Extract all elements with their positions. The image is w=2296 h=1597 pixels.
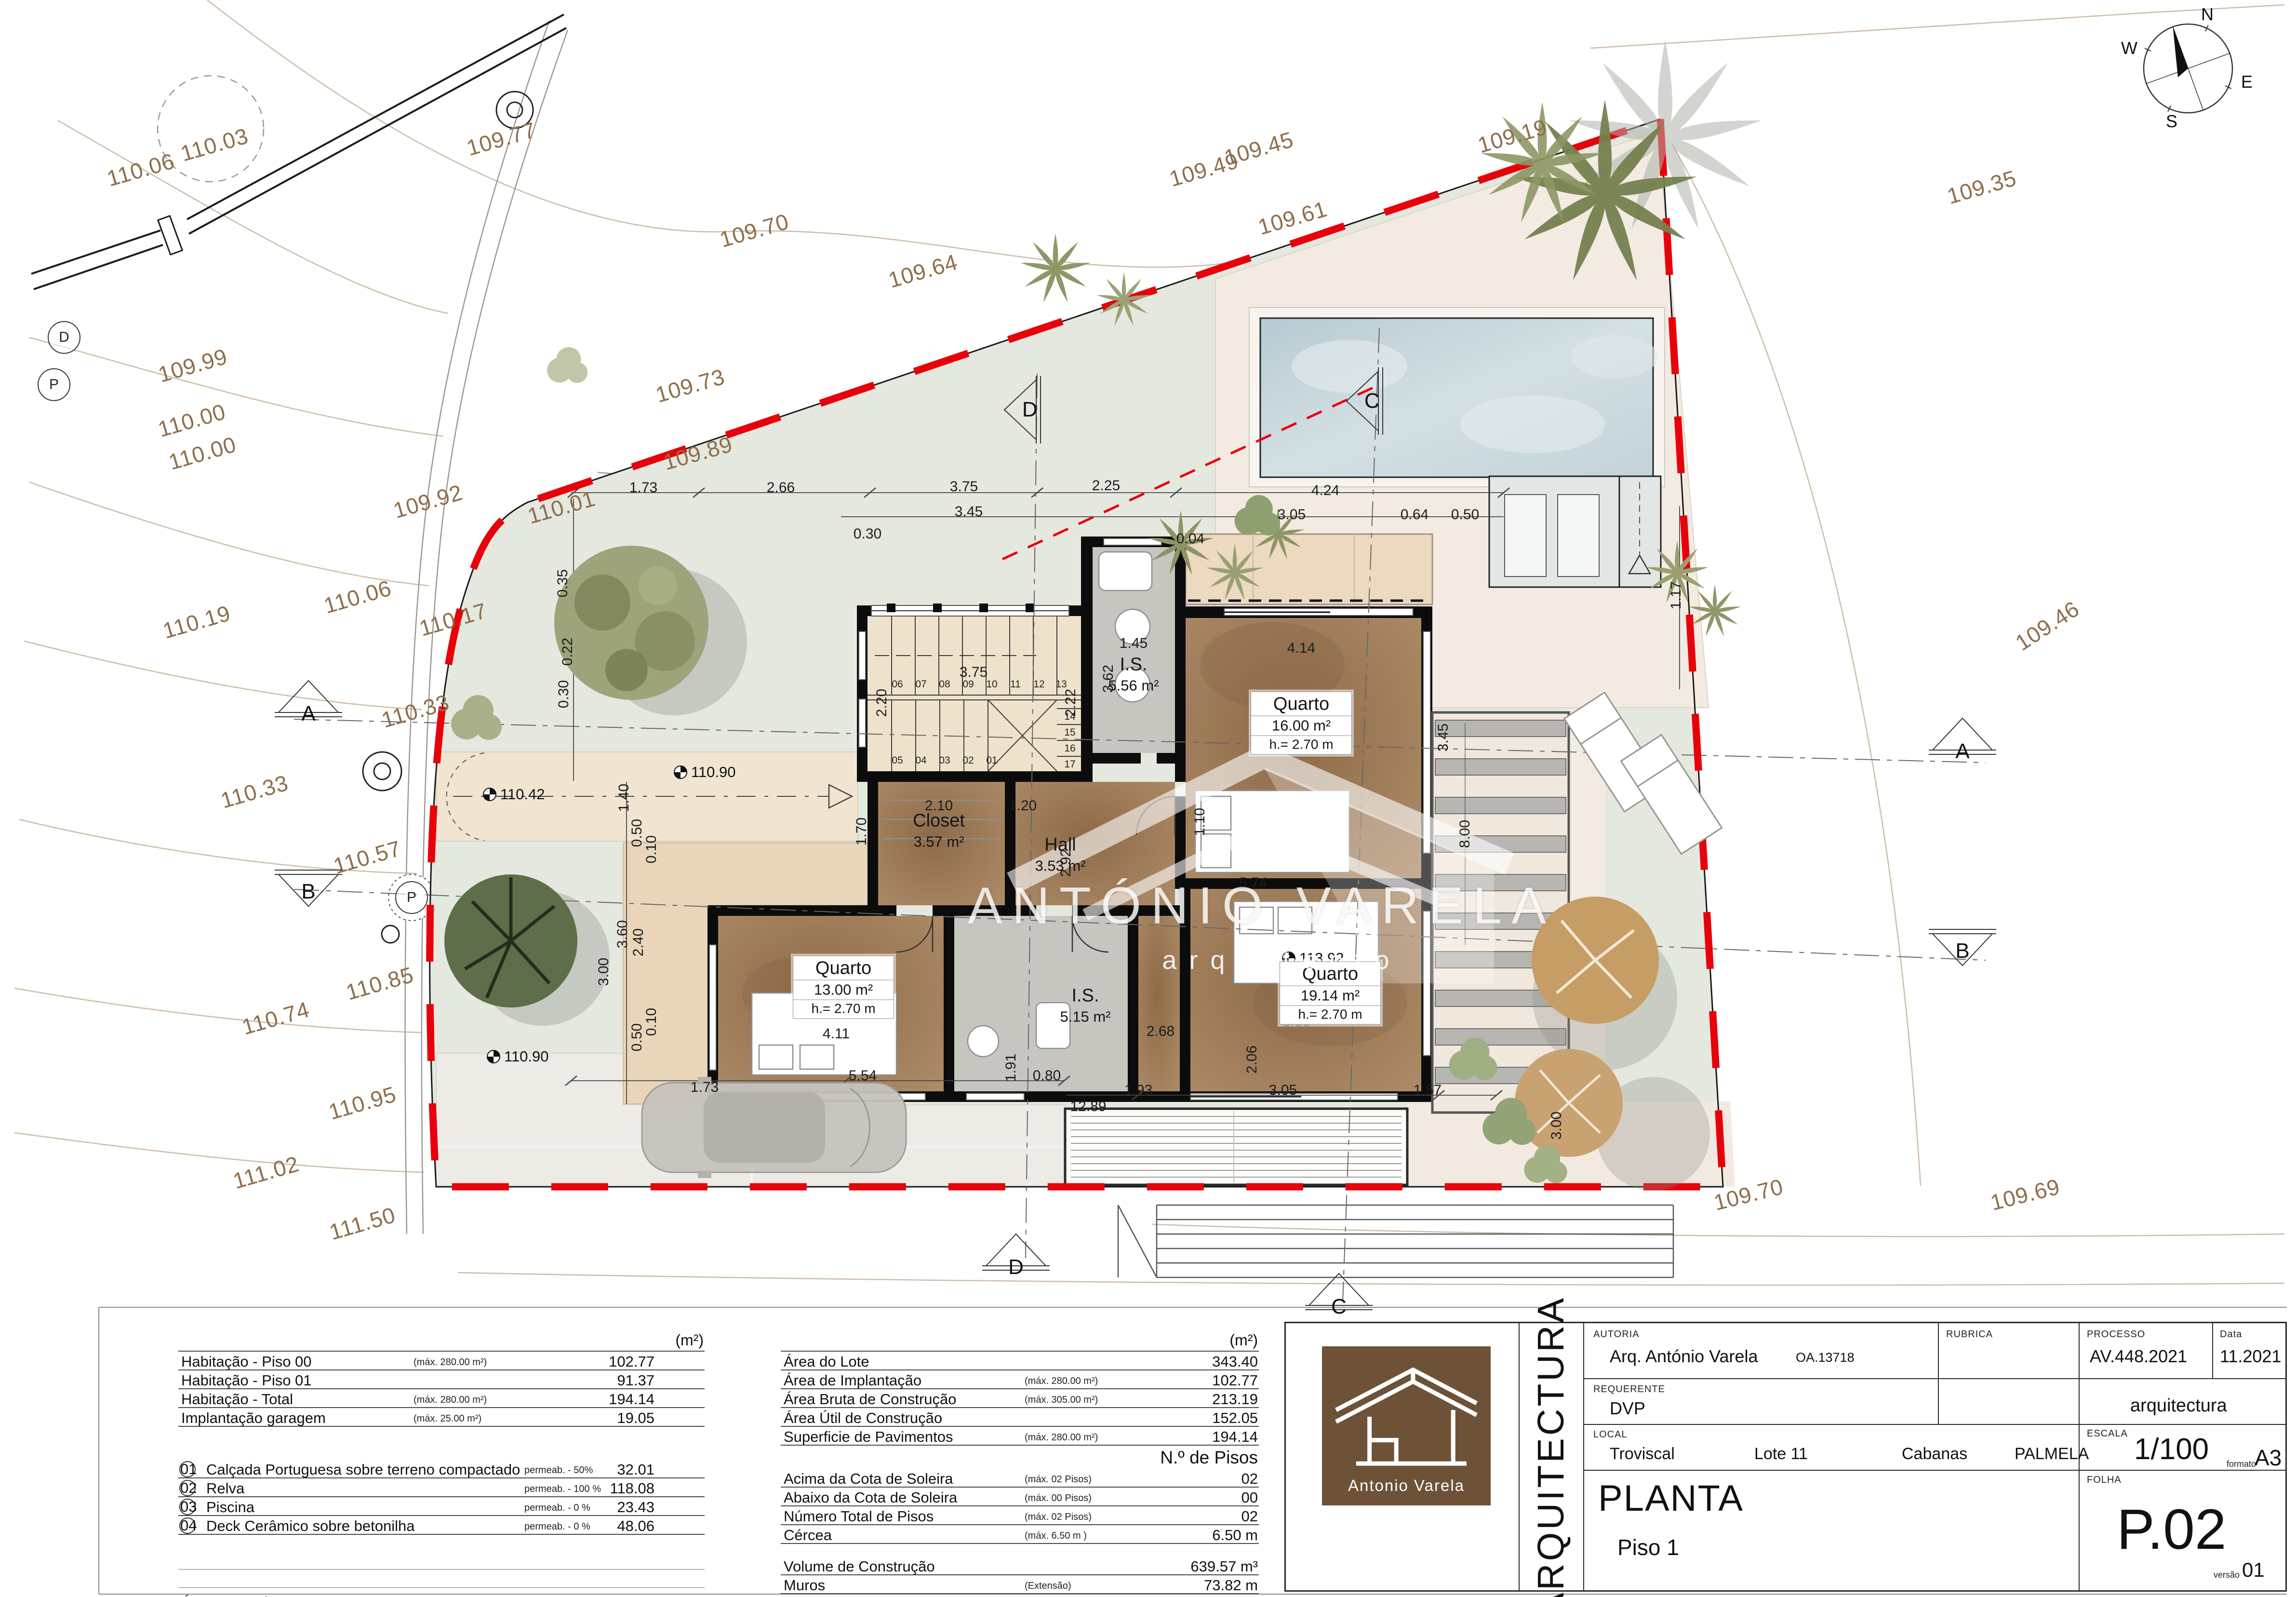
compass-icon	[2131, 12, 2245, 125]
local-3: Cabanas	[1902, 1445, 1967, 1463]
local-label: LOCAL	[1593, 1429, 1628, 1440]
dimension-label: 2.66	[767, 480, 795, 496]
room-area: 5.15 m²	[1053, 1007, 1117, 1027]
dimension-label: 1.70	[854, 818, 870, 845]
row-label: Relva	[206, 1480, 244, 1497]
requerente-value: DVP	[1610, 1398, 1645, 1419]
row-value: 343.40	[1212, 1353, 1258, 1370]
dimension-label: 0.50	[629, 1023, 645, 1051]
section-letter: C	[1364, 389, 1380, 413]
row-value: 194.14	[609, 1391, 654, 1408]
spot-elevation-value: 110.90	[504, 1048, 549, 1065]
room-label: I.S.5.56 m²	[1101, 653, 1165, 696]
row-note: (máx. 280.00 m²)	[1025, 1376, 1098, 1387]
circled-letter-symbol: D	[48, 321, 80, 354]
row-note: permeab. - 0 %	[524, 1503, 590, 1514]
row-value: 00	[1241, 1489, 1258, 1506]
table-row: 03Piscinapermeab. - 0 %23.43	[178, 1497, 705, 1516]
row-label: Área do Lote	[784, 1353, 869, 1370]
room-name: I.S.	[1101, 653, 1165, 676]
row-value: 23.43	[617, 1499, 654, 1516]
section-marker: A	[275, 675, 342, 742]
row-value: 02	[1241, 1508, 1258, 1525]
row-note: permeab. - 50%	[524, 1465, 593, 1476]
row-label: Acima da Cota de Soleira	[784, 1470, 953, 1488]
table-row: 04Deck Cerâmico sobre betonilhapermeab. …	[178, 1516, 705, 1535]
rubrica-label: RUBRICA	[1946, 1329, 1993, 1340]
stair-step-number: 15	[1064, 727, 1075, 738]
dimension-label: 0.22	[560, 638, 576, 666]
dimension-label: 2.06	[1244, 1046, 1260, 1074]
table-row: Habitação - Piso 00(máx. 280.00 m²)102.7…	[178, 1352, 705, 1370]
dimension-label: 0.30	[556, 680, 572, 708]
row-value: 639.57 m³	[1190, 1558, 1258, 1575]
stair-step-number: 16	[1064, 743, 1075, 754]
section-marker: B	[275, 869, 342, 936]
row-note: (máx. 280.00 m²)	[414, 1395, 487, 1406]
benchmark-icon	[674, 765, 687, 779]
row-note: (máx. 280.00 m²)	[414, 1357, 487, 1368]
room-label: Quarto16.00 m²h.= 2.70 m	[1251, 692, 1352, 755]
processo-value: AV.448.2021	[2090, 1346, 2187, 1367]
table-row: Área de Implantação(máx. 280.00 m²)102.7…	[781, 1370, 1259, 1389]
dimension-label: 3.60	[614, 920, 631, 948]
folha-label: FOLHA	[2087, 1475, 2122, 1486]
versao-value: 01	[2242, 1558, 2265, 1582]
room-name: Closet	[906, 809, 972, 832]
room-height: h.= 2.70 m	[1251, 736, 1351, 754]
total-percent: 39.04%	[653, 1594, 704, 1597]
dimension-label: 1.73	[629, 480, 657, 496]
compass-w: W	[2121, 38, 2137, 58]
row-value: 152.05	[1212, 1409, 1258, 1427]
row-label: Área Bruta de Construção	[784, 1391, 956, 1408]
titleblock-vertical-label: ARQUITECTURA	[1519, 1323, 1583, 1590]
section-marker: D	[988, 376, 1055, 443]
row-label: Volume de Construção	[784, 1558, 935, 1575]
watermark-subtext: arquitecto	[1162, 945, 1402, 975]
row-number: 02	[179, 1480, 196, 1496]
table-row: Muros(Altura)0.80 m	[781, 1594, 1259, 1597]
section-marker: D	[982, 1228, 1050, 1296]
room-area: 3.57 m²	[906, 832, 972, 852]
dimension-label: 4.24	[1311, 483, 1339, 499]
logo-name: Antonio Varela	[1322, 1476, 1491, 1495]
stair-step-number: 11	[1010, 679, 1021, 690]
stair-step-number: 02	[962, 755, 974, 766]
row-label: Habitação - Total	[181, 1391, 293, 1408]
escala-label: ESCALA	[2087, 1428, 2128, 1439]
formato-label: formato	[2227, 1459, 2256, 1469]
row-value: 19.05	[617, 1409, 654, 1427]
table-row: Área do Lote343.40	[781, 1352, 1259, 1370]
room-area: 16.00 m²	[1251, 716, 1351, 736]
compass-e: E	[2241, 72, 2253, 92]
room-name: I.S.	[1053, 984, 1117, 1007]
row-number: 01	[179, 1461, 196, 1477]
row-label: Habitação - Piso 01	[181, 1372, 312, 1389]
street-steps	[1118, 1205, 1673, 1277]
stair-step-number: 05	[892, 755, 903, 766]
compass-n: N	[2201, 4, 2214, 25]
section-letter: A	[301, 702, 315, 726]
room-name: Quarto	[1251, 692, 1351, 716]
row-note: (máx. 305.00 m²)	[1025, 1395, 1098, 1406]
dimension-label: 3.75	[950, 479, 978, 495]
dimension-label: 0.50	[1451, 507, 1479, 523]
formato-value: A3	[2255, 1445, 2282, 1471]
room-label: Quarto13.00 m²h.= 2.70 m	[793, 956, 894, 1019]
table-total-row: Área Permeável134.08 m²39.04%	[178, 1593, 705, 1597]
stair-step-number: 10	[986, 679, 997, 690]
sheet-title: PLANTA	[1598, 1477, 1744, 1519]
arquitectura-vertical-text: ARQUITECTURA	[1530, 1296, 1573, 1597]
stair-step-number: 03	[939, 755, 950, 766]
room-area: 5.56 m²	[1101, 676, 1165, 696]
section-letter: D	[1008, 1255, 1024, 1279]
room-name: Quarto	[793, 956, 894, 980]
dimension-label: 3.05	[1278, 507, 1306, 523]
room-name: Hall	[1028, 833, 1092, 857]
row-note: (máx. 280.00 m²)	[1025, 1432, 1098, 1443]
row-value: 6.50 m	[1212, 1527, 1258, 1544]
table-row: Implantação garagem(máx. 25.00 m²)19.05	[178, 1408, 705, 1427]
department: arquitectura	[2130, 1396, 2227, 1416]
dimension-label: 2.40	[630, 928, 647, 956]
row-note: (Extensão)	[1025, 1581, 1071, 1592]
dimension-label: 1.45	[1120, 635, 1148, 652]
row-note: (máx. 02 Pisos)	[1025, 1474, 1092, 1485]
row-value: 194.14	[1212, 1428, 1258, 1446]
row-note: (máx. 6.50 m )	[1025, 1530, 1087, 1542]
stair-step-number: 17	[1064, 759, 1075, 770]
total-value: 134.08 m²	[511, 1594, 578, 1597]
dimension-label: 2.20	[874, 689, 890, 717]
row-value: 102.77	[1212, 1372, 1258, 1389]
dimension-label: 1.93	[1124, 1082, 1152, 1099]
dimension-label: 0.10	[643, 835, 660, 863]
table-row: Abaixo da Cota de Soleira(máx. 00 Pisos)…	[781, 1488, 1259, 1506]
architectural-plan-sheet: 110.03110.06109.77109.70109.64109.73109.…	[0, 0, 2296, 1597]
sheet-subtitle: Piso 1	[1617, 1534, 1679, 1560]
stairwell-floor	[868, 616, 1081, 771]
row-note: permeab. - 0 %	[524, 1521, 590, 1532]
table-row: Volume de Construção639.57 m³	[781, 1557, 1259, 1575]
folha-value: P.02	[2117, 1497, 2227, 1562]
watermark-text: ANTÓNIO VARELA	[968, 875, 1556, 936]
table-row: Superficie de Pavimentos(máx. 280.00 m²)…	[781, 1427, 1259, 1446]
dimension-label: 0.35	[555, 569, 571, 597]
benchmark-icon	[487, 1050, 500, 1063]
room-label: I.S.5.15 m²	[1053, 984, 1117, 1027]
dark-tree	[444, 874, 577, 1007]
pisos-subheader: N.º de Pisos	[1160, 1448, 1258, 1468]
pool-tech-room	[1489, 476, 1661, 587]
section-letter: C	[1331, 1295, 1347, 1319]
table-unit-header: (m²)	[675, 1331, 704, 1349]
stair-step-number: 07	[915, 679, 926, 690]
row-value: 48.06	[617, 1517, 654, 1535]
dimension-label: 4.11	[823, 1026, 850, 1042]
processo-label: PROCESSO	[2087, 1329, 2145, 1340]
circled-letter-symbol: P	[38, 368, 70, 401]
section-marker: A	[1929, 712, 1996, 780]
dimension-label: 3.05	[1269, 1082, 1297, 1099]
row-value: 32.01	[617, 1461, 654, 1478]
dimension-label: 0.10	[643, 1008, 660, 1036]
table-row: 02Relvapermeab. - 100 %118.08	[178, 1478, 705, 1497]
areas-table-left: (m²) Habitação - Piso 00(máx. 280.00 m²)…	[178, 1331, 705, 1597]
row-number: 04	[179, 1517, 196, 1534]
row-value: 91.37	[617, 1372, 654, 1389]
room-area: 13.00 m²	[793, 980, 894, 1000]
autoria-number: OA.13718	[1796, 1350, 1855, 1365]
room-area: 3.53 m²	[1028, 857, 1092, 876]
row-number: 03	[179, 1499, 196, 1515]
room-label: Hall3.53 m²	[1028, 833, 1092, 876]
total-label: Área Permeável	[181, 1594, 288, 1597]
stair-step-number: 08	[939, 679, 950, 690]
dimension-label: 1.17	[1668, 581, 1684, 609]
row-value: 213.19	[1212, 1391, 1258, 1408]
circled-letter-symbol: P	[395, 881, 428, 914]
dimension-label: 1.20	[1009, 798, 1037, 814]
dimension-label: 12.89	[1070, 1099, 1106, 1115]
car	[642, 1077, 906, 1178]
dimension-label: 1.91	[1003, 1054, 1019, 1082]
logo: Antonio Varela	[1322, 1346, 1491, 1505]
dimension-label: 4.14	[1287, 640, 1315, 657]
dimension-label: 1.57	[1414, 1082, 1442, 1099]
table-row: Habitação - Piso 0191.37	[178, 1370, 705, 1389]
table-unit-header: (m²)	[1229, 1331, 1258, 1349]
requerente-label: REQUERENTE	[1593, 1384, 1665, 1395]
benchmark-icon	[483, 788, 496, 801]
table-row: Número Total de Pisos(máx. 02 Pisos)02	[781, 1506, 1259, 1525]
areas-table-middle: (m²) Área do Lote343.40Área de Implantaç…	[781, 1331, 1259, 1597]
title-block: Antonio Varela ARQUITECTURA AUTORIA Arq.…	[1284, 1322, 2287, 1592]
spot-elevation: 110.90	[674, 764, 736, 781]
olive-tree	[554, 546, 708, 700]
section-letter: D	[1022, 398, 1038, 422]
autoria-label: AUTORIA	[1593, 1329, 1640, 1340]
dimension-label: 1.40	[616, 784, 632, 812]
section-marker: B	[1929, 928, 1996, 995]
row-label: Área Útil de Construção	[784, 1409, 942, 1427]
logo-house-icon	[1322, 1353, 1491, 1474]
stair-step-number: 13	[1055, 679, 1067, 690]
local-1: Troviscal	[1610, 1445, 1675, 1463]
row-label: Calçada Portuguesa sobre terreno compact…	[206, 1461, 520, 1478]
dimension-label: 2.68	[1147, 1023, 1175, 1040]
table-row: Área Útil de Construção152.05	[781, 1408, 1259, 1427]
dimension-label: 3.75	[960, 664, 988, 681]
row-label: Habitação - Piso 00	[181, 1353, 312, 1370]
row-value: 102.77	[609, 1353, 654, 1370]
dimension-label: 0.30	[854, 526, 881, 542]
versao-label: versão	[2214, 1570, 2240, 1580]
spot-elevation-value: 110.42	[500, 786, 545, 803]
stair-step-number: 06	[892, 679, 903, 690]
dimension-label: 3.00	[1548, 1112, 1565, 1140]
dimension-label: 0.80	[1033, 1068, 1061, 1084]
row-note: (máx. 00 Pisos)	[1025, 1493, 1092, 1504]
spot-elevation: 110.90	[487, 1048, 549, 1065]
row-label: Número Total de Pisos	[784, 1508, 934, 1525]
room-height: h.= 2.70 m	[1280, 1006, 1380, 1024]
dimension-label: 0.04	[1176, 531, 1204, 547]
dimension-label: 0.50	[629, 819, 645, 847]
row-label: Superficie de Pavimentos	[784, 1428, 953, 1446]
compass-s: S	[2166, 111, 2177, 132]
spot-elevation: 110.42	[483, 786, 545, 803]
local-2: Lote 11	[1754, 1445, 1808, 1463]
dimension-label: 1.10	[1192, 808, 1208, 836]
section-letter: B	[301, 880, 315, 904]
louver-deck	[1065, 1109, 1407, 1185]
dimension-label: 3.00	[596, 958, 612, 986]
table-row: Muros(Extensão)73.82 m	[781, 1575, 1259, 1594]
stair-step-number: 14	[1064, 711, 1075, 723]
row-value: 02	[1241, 1470, 1258, 1488]
room-label: Closet3.57 m²	[906, 809, 972, 852]
row-value: 118.08	[610, 1480, 654, 1497]
row-label: Abaixo da Cota de Soleira	[784, 1489, 957, 1506]
table-row: Área Bruta de Construção(máx. 305.00 m²)…	[781, 1389, 1259, 1408]
spot-elevation-value: 110.90	[691, 764, 736, 781]
row-note: (máx. 25.00 m²)	[414, 1413, 481, 1424]
row-label: Piscina	[206, 1499, 254, 1516]
table-row: Acima da Cota de Soleira(máx. 02 Pisos)0…	[781, 1469, 1259, 1488]
room-area: 19.14 m²	[1280, 986, 1380, 1006]
section-marker: C	[1330, 367, 1398, 435]
autoria-value: Arq. António Varela	[1610, 1346, 1758, 1367]
section-letter: B	[1955, 939, 1969, 963]
escala-value: 1/100	[2134, 1432, 2209, 1466]
stair-step-number: 01	[986, 755, 997, 766]
dimension-label: 2.25	[1092, 478, 1120, 494]
data-label: Data	[2220, 1329, 2242, 1340]
row-label: Área de Implantação	[784, 1372, 921, 1389]
row-label: Muros	[784, 1577, 825, 1594]
section-letter: A	[1955, 739, 1969, 764]
row-note: (máx. 02 Pisos)	[1025, 1512, 1092, 1523]
data-value: 11.2021	[2220, 1346, 2281, 1367]
dimension-label: 5.54	[849, 1068, 877, 1084]
stair-step-number: 04	[915, 755, 926, 766]
row-label: Deck Cerâmico sobre betonilha	[206, 1517, 415, 1535]
row-note: permeab. - 100 %	[524, 1484, 601, 1495]
row-label: Cércea	[784, 1527, 832, 1544]
row-value: 73.82 m	[1204, 1577, 1258, 1594]
stair-step-number: 12	[1033, 679, 1044, 690]
local-4: PALMELA	[2015, 1445, 2089, 1463]
row-label: Implantação garagem	[181, 1409, 326, 1427]
dimension-label: 3.45	[955, 504, 983, 520]
table-row: Cércea(máx. 6.50 m )6.50 m	[781, 1525, 1259, 1544]
table-row: Habitação - Total(máx. 280.00 m²)194.14	[178, 1389, 705, 1408]
stair-step-number: 09	[962, 679, 974, 690]
dimension-label: 8.00	[1457, 820, 1473, 848]
room-height: h.= 2.70 m	[793, 1000, 894, 1019]
dimension-label: 3.45	[1435, 724, 1452, 752]
dimension-label: 0.64	[1401, 507, 1428, 523]
dimension-label: 1.73	[691, 1079, 719, 1096]
table-row: 01Calçada Portuguesa sobre terreno compa…	[178, 1460, 705, 1478]
